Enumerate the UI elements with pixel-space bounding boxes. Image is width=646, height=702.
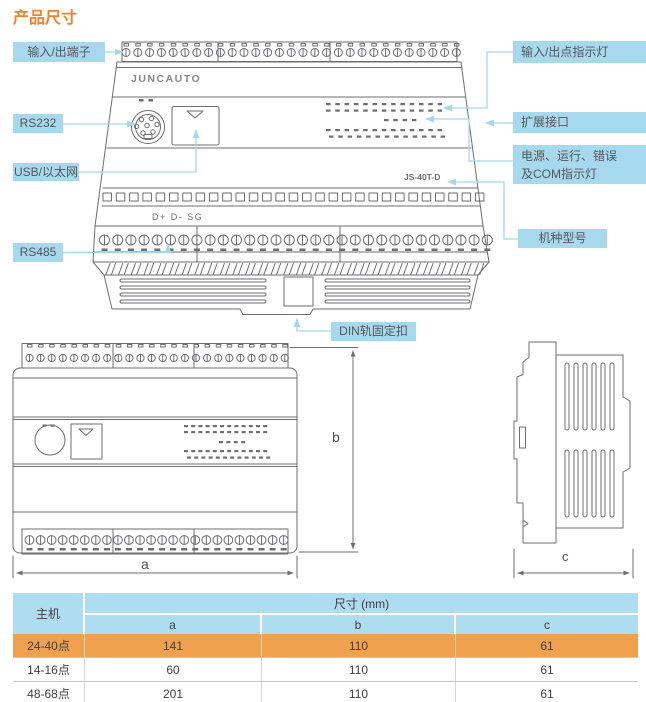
callout-power-indicators-line2: 及COM指示灯 — [521, 167, 597, 181]
row-a: 60 — [85, 657, 262, 681]
row-b: 110 — [262, 681, 456, 702]
dim-label-a: a — [141, 556, 149, 572]
callout-io-indicators: 输入/出点指示灯 — [513, 41, 646, 63]
callout-power-indicators: 电源、运行、错误 及COM指示灯 — [513, 145, 646, 184]
product-dimensions-page: 产品尺寸 输入/出端子 RS232 USB/以太网 RS485 输入/出点指示灯… — [0, 0, 646, 702]
diagram-filled-marks — [27, 99, 491, 551]
rs485-terminal-labels: D+ D- SG — [152, 212, 203, 222]
table-row: 24-40点 141 110 61 — [13, 634, 638, 657]
device-brand-label: JUNCAUTO — [131, 73, 201, 85]
table-header-size: 尺寸 (mm) — [85, 593, 638, 615]
callout-model-name: 机种型号 — [518, 229, 607, 248]
table-row: 48-68点 201 110 61 — [13, 681, 638, 702]
row-c: 61 — [456, 634, 638, 657]
row-c: 61 — [456, 681, 638, 702]
callout-power-indicators-line1: 电源、运行、错误 — [521, 149, 617, 163]
table-row: 14-16点 60 110 61 — [13, 657, 638, 681]
row-model: 14-16点 — [13, 657, 85, 681]
callout-io-terminals: 输入/出端子 — [13, 42, 105, 62]
table-col-c: c — [456, 615, 638, 634]
row-c: 61 — [456, 657, 638, 681]
table-col-b: b — [262, 615, 456, 634]
table-header-main: 主机 — [13, 593, 85, 634]
callout-din-clip: DIN轨固定扣 — [331, 322, 416, 341]
callout-usb-ethernet: USB/以太网 — [13, 163, 79, 181]
dim-label-b: b — [332, 429, 340, 445]
table-col-a: a — [85, 615, 262, 634]
row-a: 141 — [85, 634, 262, 657]
row-model: 48-68点 — [13, 681, 85, 702]
row-b: 110 — [262, 657, 456, 681]
device-model-label: JS-40T-D — [404, 172, 440, 182]
callout-rs485: RS485 — [13, 243, 63, 262]
row-model: 24-40点 — [13, 634, 85, 657]
row-b: 110 — [262, 634, 456, 657]
dimension-table: 主机 尺寸 (mm) a b c 24-40点 141 110 61 14-16… — [13, 593, 638, 702]
page-title: 产品尺寸 — [13, 4, 77, 28]
callout-expansion-port: 扩展接口 — [513, 112, 646, 133]
dim-label-c: c — [562, 549, 569, 564]
callout-rs232: RS232 — [13, 114, 63, 133]
row-a: 201 — [85, 681, 262, 702]
